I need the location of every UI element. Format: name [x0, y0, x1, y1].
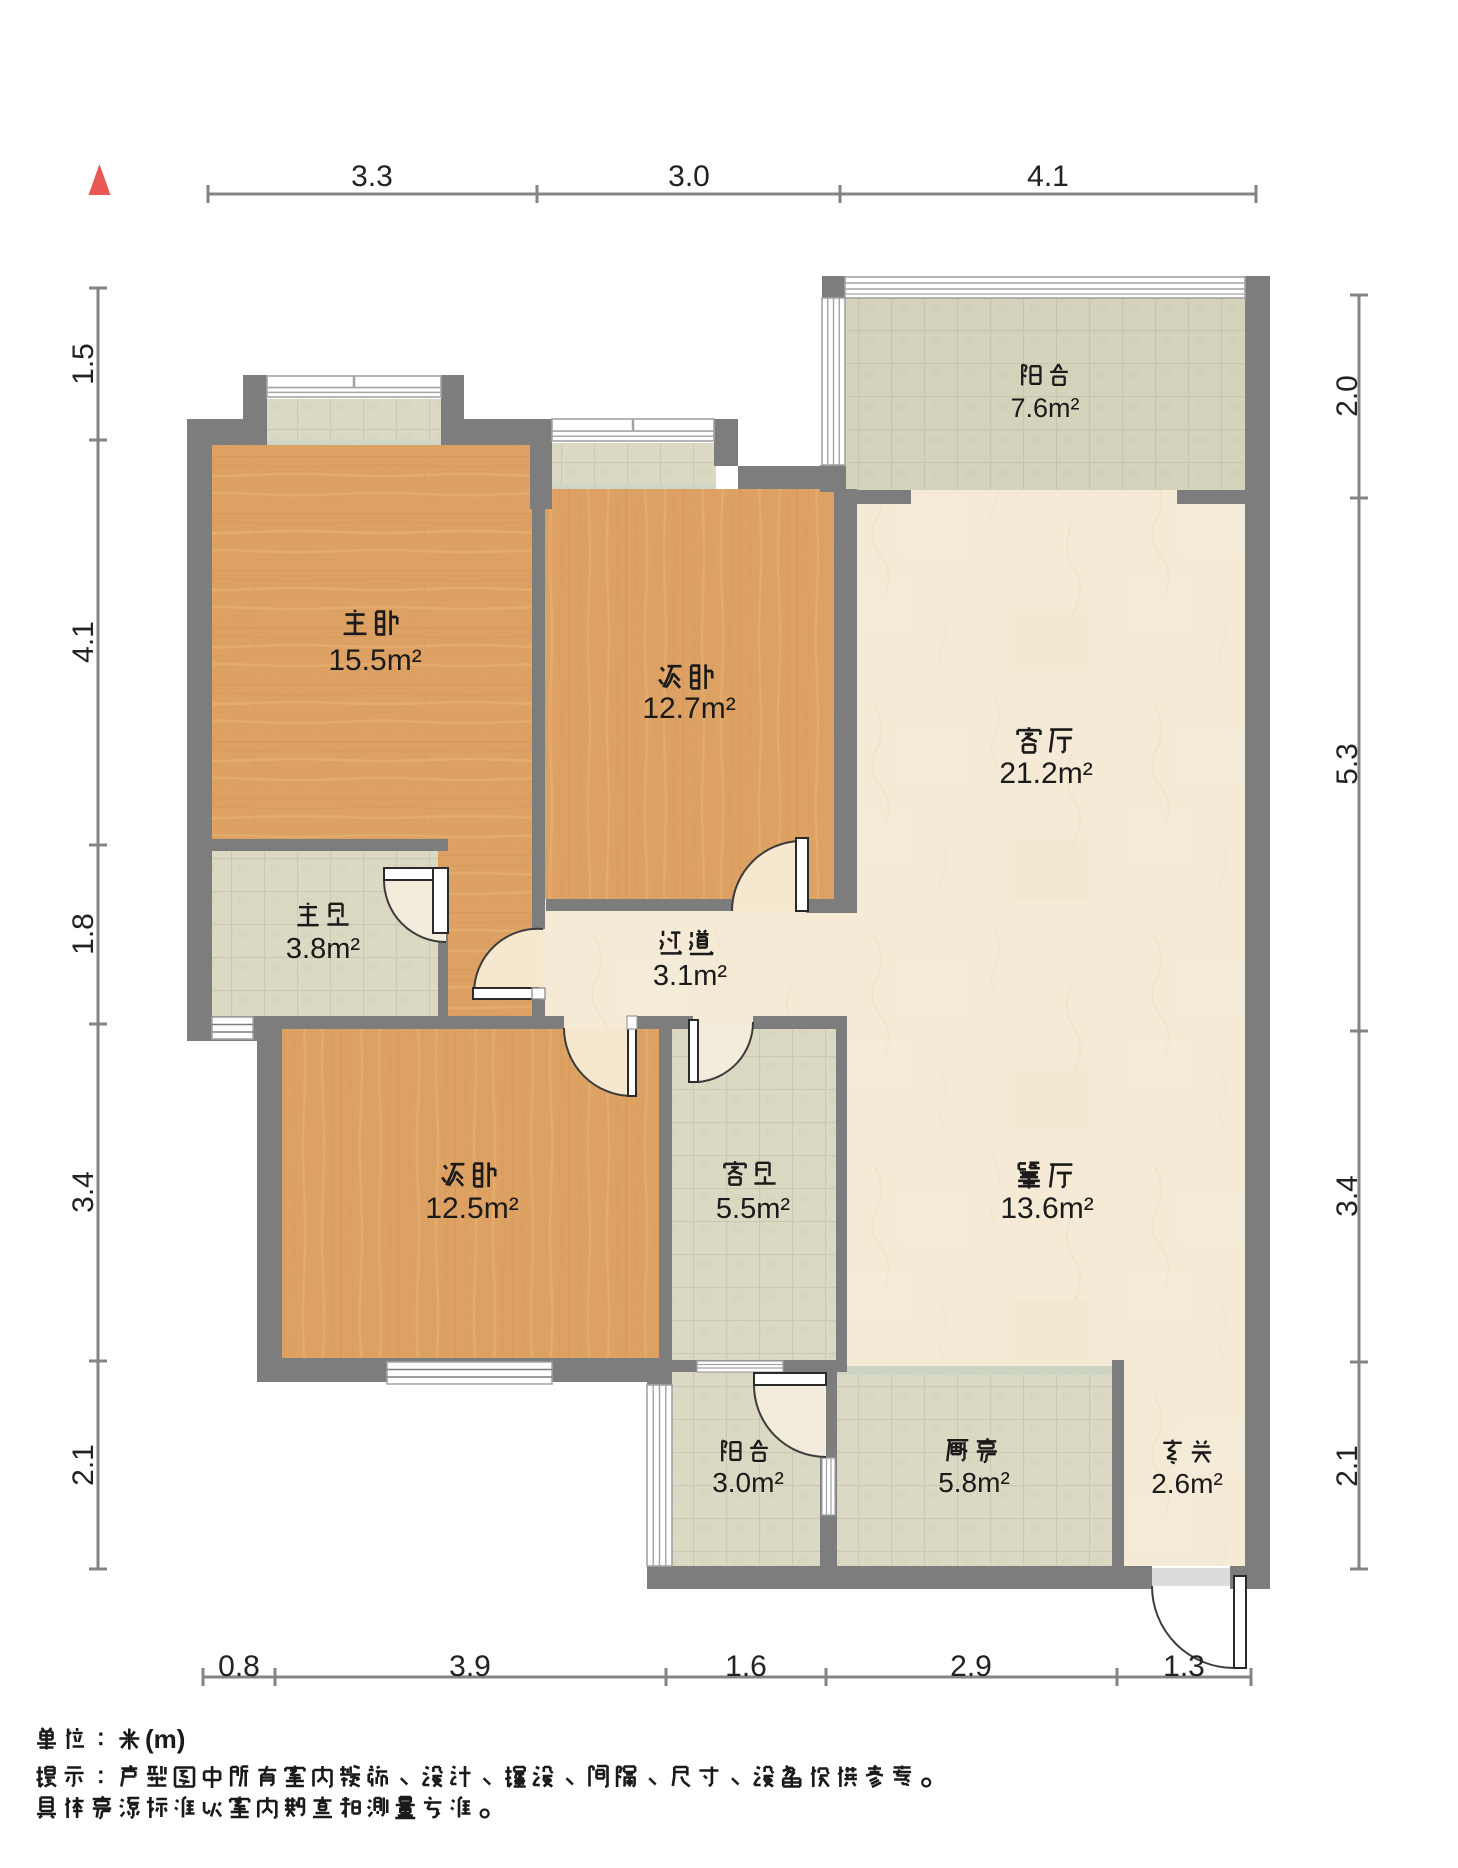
- svg-text:7.6m²: 7.6m²: [1010, 393, 1079, 423]
- svg-text:12.5m²: 12.5m²: [425, 1192, 518, 1225]
- svg-text:4.1: 4.1: [67, 621, 100, 663]
- svg-text:2.1: 2.1: [67, 1444, 100, 1486]
- svg-text:1.8: 1.8: [67, 913, 100, 955]
- svg-text:3.1m²: 3.1m²: [653, 960, 727, 992]
- svg-text:12.7m²: 12.7m²: [642, 692, 735, 725]
- svg-text:5.5m²: 5.5m²: [716, 1193, 790, 1225]
- svg-text:3.3: 3.3: [351, 160, 393, 193]
- svg-text:0.8: 0.8: [218, 1650, 260, 1683]
- svg-text:1.5: 1.5: [67, 343, 100, 385]
- svg-text:5.8m²: 5.8m²: [938, 1467, 1010, 1498]
- svg-text:4.1: 4.1: [1027, 160, 1069, 193]
- svg-text:3.4: 3.4: [67, 1171, 100, 1213]
- svg-text:3.9: 3.9: [449, 1650, 491, 1683]
- svg-text:(m): (m): [145, 1724, 185, 1754]
- svg-text:2.0: 2.0: [1331, 375, 1364, 417]
- svg-text:2.9: 2.9: [950, 1650, 992, 1683]
- svg-text:1.6: 1.6: [725, 1650, 767, 1683]
- svg-text:13.6m²: 13.6m²: [1000, 1192, 1093, 1225]
- svg-text:5.3: 5.3: [1331, 743, 1364, 785]
- svg-text:21.2m²: 21.2m²: [999, 757, 1092, 790]
- svg-text:1.3: 1.3: [1163, 1650, 1205, 1683]
- svg-text:3.0: 3.0: [668, 160, 710, 193]
- svg-text:2.6m²: 2.6m²: [1151, 1468, 1223, 1499]
- svg-text:3.0m²: 3.0m²: [712, 1467, 784, 1498]
- svg-text:3.4: 3.4: [1331, 1175, 1364, 1217]
- svg-text:2.1: 2.1: [1331, 1445, 1364, 1487]
- svg-text:15.5m²: 15.5m²: [328, 644, 421, 677]
- svg-text:3.8m²: 3.8m²: [286, 933, 360, 965]
